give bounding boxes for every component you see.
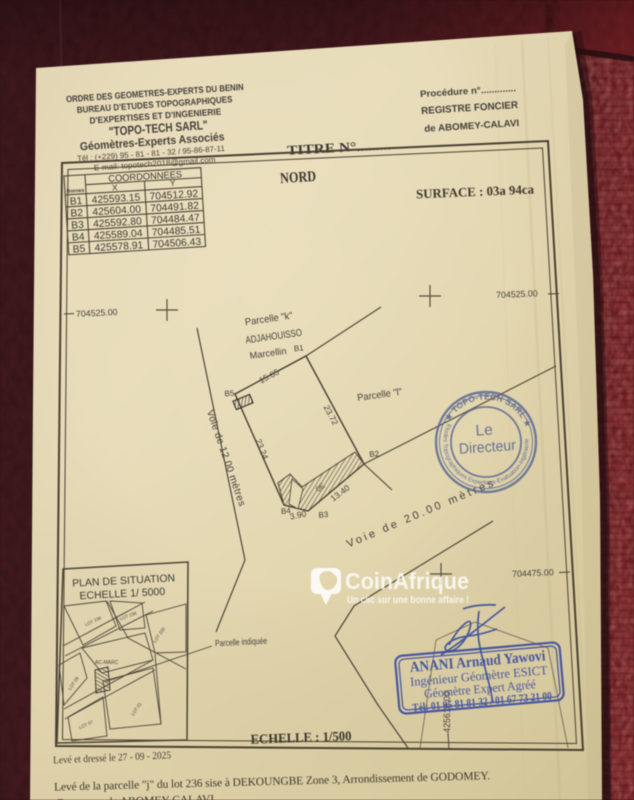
- svg-text:B3: B3: [71, 220, 85, 232]
- svg-text:B1: B1: [69, 196, 83, 208]
- svg-text:B5: B5: [72, 244, 86, 256]
- svg-text:CoinAfrique: CoinAfrique: [345, 568, 469, 594]
- svg-text:B5: B5: [224, 389, 235, 399]
- svg-text:Le: Le: [475, 422, 493, 440]
- svg-text:Y: Y: [169, 178, 176, 188]
- svg-text:704525.00: 704525.00: [496, 288, 538, 300]
- svg-text:704475.00: 704475.00: [512, 567, 554, 579]
- svg-text:B4: B4: [72, 232, 86, 244]
- svg-text:B2: B2: [70, 208, 84, 220]
- svg-text:B2: B2: [369, 449, 380, 459]
- svg-text:NORD: NORD: [280, 169, 317, 187]
- svg-text:Un clic sur une bonne affaire: Un clic sur une bonne affaire !: [347, 594, 469, 606]
- svg-text:Bornes: Bornes: [66, 188, 84, 195]
- svg-text:X: X: [112, 182, 119, 192]
- svg-text:B3: B3: [318, 510, 329, 520]
- svg-text:AC-MARC: AC-MARC: [95, 660, 119, 666]
- svg-text:B1: B1: [294, 343, 305, 353]
